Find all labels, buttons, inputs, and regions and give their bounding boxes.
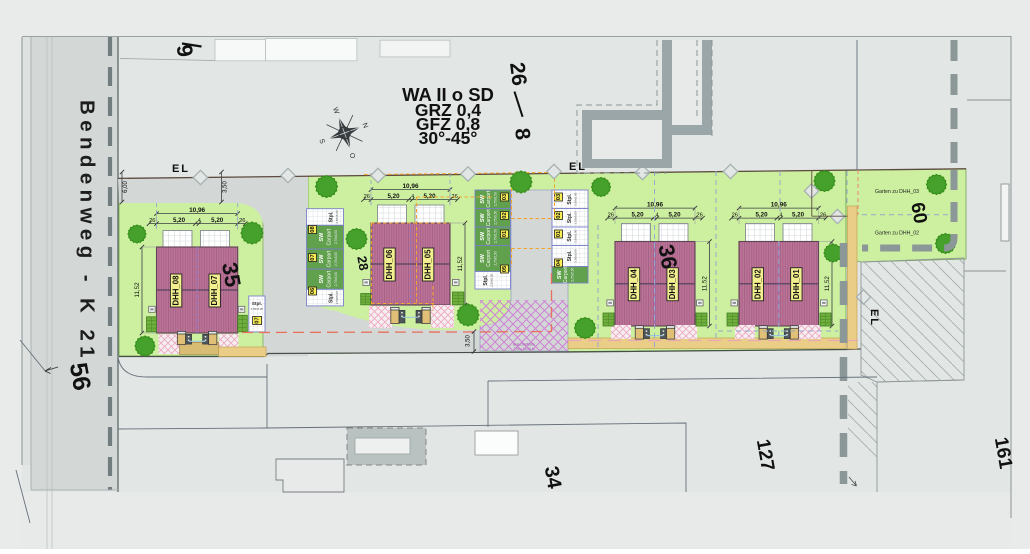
svg-text:56: 56 (64, 360, 96, 392)
svg-text:2,50x5,00: 2,50x5,00 (335, 210, 339, 224)
svg-text:36: 36 (653, 242, 682, 270)
svg-text:28: 28 (354, 255, 371, 272)
svg-text:Stpl.: Stpl. (329, 292, 335, 303)
svg-text:Stpl.: Stpl. (329, 211, 335, 222)
svg-text:26: 26 (820, 213, 826, 219)
svg-text:DHH_03: DHH_03 (668, 269, 677, 300)
svg-text:,4: ,4 (196, 218, 200, 224)
svg-text:5,20: 5,20 (668, 212, 681, 219)
svg-text:26: 26 (364, 194, 370, 200)
svg-text:2,50x5,00: 2,50x5,00 (489, 273, 493, 287)
svg-text:07: 07 (310, 254, 316, 260)
svg-text:2,50x5,00: 2,50x5,00 (335, 291, 339, 305)
svg-text:Bendenweg - K 21: Bendenweg - K 21 (76, 100, 99, 363)
svg-text:07: 07 (255, 317, 261, 323)
svg-text:5,20: 5,20 (755, 212, 768, 219)
svg-text:Garten zu DHH_02: Garten zu DHH_02 (875, 231, 919, 237)
svg-text:Carport: Carport (327, 250, 333, 267)
svg-text:26: 26 (505, 61, 531, 87)
svg-text:2,75x5,50: 2,75x5,50 (334, 230, 338, 244)
svg-text:DHH_05: DHH_05 (424, 249, 433, 280)
svg-text:Carport: Carport (486, 190, 492, 207)
svg-text:2,50x5,00: 2,50x5,00 (574, 229, 578, 243)
svg-text:2,75x5,50: 2,75x5,50 (493, 192, 497, 206)
svg-text:11,52: 11,52 (701, 276, 708, 292)
svg-text:11,52: 11,52 (134, 282, 141, 298)
svg-text:Carport: Carport (486, 227, 492, 244)
svg-text:Carport: Carport (327, 228, 333, 245)
svg-text:Carport: Carport (327, 270, 333, 287)
svg-text:EL: EL (569, 161, 587, 173)
svg-text:2,75x5,50: 2,75x5,50 (571, 268, 575, 282)
svg-text:2,75x5,50: 2,75x5,50 (334, 272, 338, 286)
svg-text:Stpl.: Stpl. (567, 230, 573, 241)
svg-text:5,20: 5,20 (387, 193, 400, 200)
svg-text:5,20: 5,20 (173, 217, 186, 224)
svg-text:,4: ,4 (778, 213, 782, 219)
svg-text:2,50x5,00: 2,50x5,00 (251, 307, 264, 311)
svg-text:SW: SW (319, 254, 325, 264)
svg-text:6,00: 6,00 (123, 181, 129, 193)
svg-text:5,20: 5,20 (631, 212, 644, 219)
svg-text:5,20: 5,20 (211, 217, 224, 224)
svg-text:Stpl.: Stpl. (567, 212, 573, 223)
svg-text:01: 01 (502, 230, 508, 237)
svg-text:10,96: 10,96 (771, 201, 787, 208)
svg-text:5,20: 5,20 (792, 212, 805, 219)
svg-text:3,50: 3,50 (466, 335, 472, 347)
svg-text:,4: ,4 (654, 213, 658, 219)
svg-text:03: 03 (502, 193, 508, 200)
svg-text:SW: SW (319, 232, 325, 242)
svg-text:DHH_07: DHH_07 (210, 276, 219, 306)
svg-text:10,96: 10,96 (647, 201, 663, 208)
svg-text:03: 03 (556, 193, 562, 200)
svg-text:Stpl.: Stpl. (483, 274, 489, 285)
svg-text:3,50: 3,50 (223, 181, 229, 193)
svg-text:Garten zu DHH_03: Garten zu DHH_03 (875, 189, 919, 195)
svg-text:26: 26 (239, 218, 245, 224)
svg-text:2,50x5,00: 2,50x5,00 (574, 211, 578, 225)
svg-text:06: 06 (310, 287, 316, 294)
svg-text:Carport: Carport (563, 266, 569, 283)
svg-text:30°-45°: 30°-45° (419, 128, 478, 148)
svg-text:26: 26 (149, 218, 155, 224)
svg-text:02: 02 (502, 212, 508, 218)
svg-text:02: 02 (556, 212, 562, 218)
svg-text:26: 26 (608, 213, 614, 219)
svg-text:EL: EL (172, 163, 190, 175)
svg-text:SW: SW (319, 274, 325, 284)
svg-text:Stpl.: Stpl. (567, 193, 573, 204)
svg-text:10,96: 10,96 (189, 207, 205, 214)
svg-text:DHH_01: DHH_01 (792, 269, 801, 300)
svg-text:04: 04 (556, 259, 562, 266)
svg-text:11,52: 11,52 (457, 256, 464, 272)
svg-text:2,75x5,50: 2,75x5,50 (334, 252, 338, 266)
svg-text:2,75x5,50: 2,75x5,50 (493, 211, 497, 225)
svg-text:DHH_04: DHH_04 (630, 269, 639, 300)
svg-text:08: 08 (310, 226, 316, 233)
svg-text:01: 01 (556, 230, 562, 237)
svg-text:EL: EL (868, 309, 880, 327)
svg-text:2,50x5,00: 2,50x5,00 (574, 249, 578, 263)
svg-text:26: 26 (732, 213, 738, 219)
svg-text:2,75x5,50: 2,75x5,50 (493, 251, 497, 265)
svg-text:2,50x5,00: 2,50x5,00 (574, 192, 578, 206)
svg-text:2,75x5,50: 2,75x5,50 (493, 229, 497, 243)
svg-text:11,52: 11,52 (824, 276, 831, 292)
svg-text:10,96: 10,96 (403, 183, 419, 190)
svg-text:26: 26 (696, 213, 702, 219)
svg-text:DHH_08: DHH_08 (172, 275, 181, 306)
svg-text:35: 35 (217, 260, 246, 288)
svg-text:Carport: Carport (486, 209, 492, 226)
svg-text:Stpl.: Stpl. (567, 250, 573, 261)
svg-text:DHH_02: DHH_02 (753, 269, 762, 300)
svg-text:05: 05 (502, 265, 508, 272)
svg-text:60: 60 (906, 201, 930, 225)
svg-text:,4: ,4 (410, 194, 414, 200)
svg-text:Carport: Carport (486, 250, 492, 267)
svg-text:7,00 x 13,00 m: 7,00 x 13,00 m (513, 347, 534, 351)
svg-text:DHH_06: DHH_06 (385, 249, 394, 280)
